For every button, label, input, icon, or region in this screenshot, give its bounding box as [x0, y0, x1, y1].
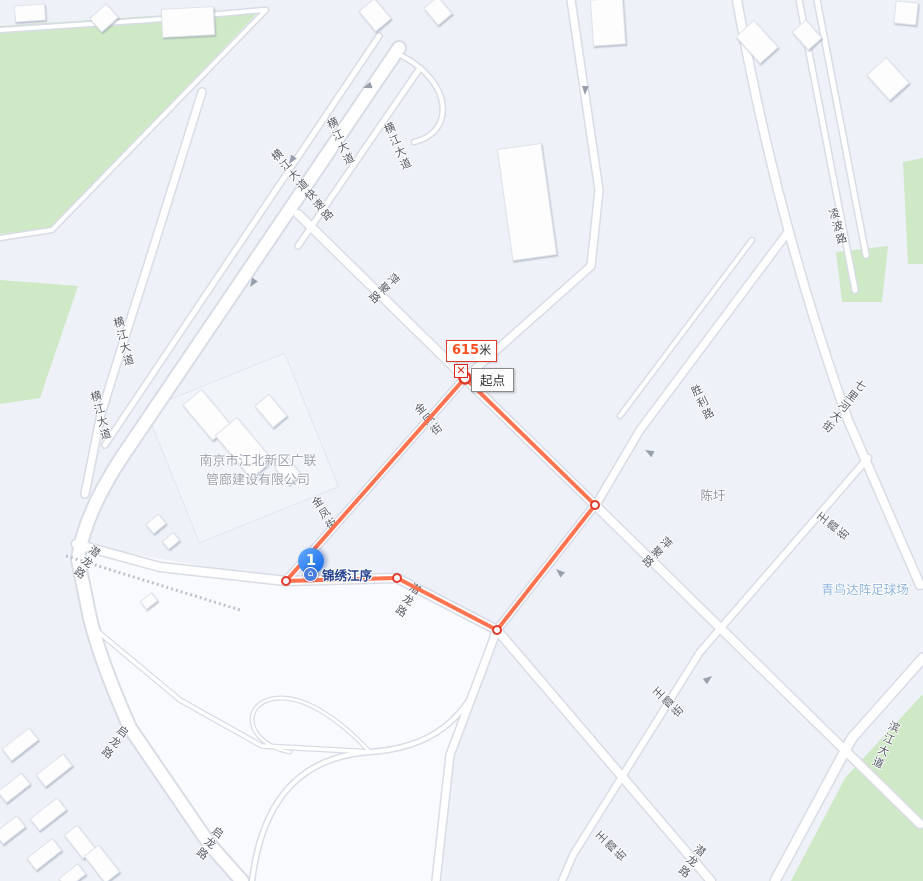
poi-name-label[interactable]: 锦绣江序	[322, 565, 372, 584]
route-vertex[interactable]	[493, 626, 501, 634]
start-point-tooltip: 起点	[471, 368, 514, 392]
distance-label-box: 615米	[446, 340, 497, 362]
distance-value: 615	[452, 343, 479, 358]
route-vertex[interactable]	[393, 574, 401, 582]
poi-building-icon[interactable]: ⌂	[303, 567, 318, 582]
route-vertex[interactable]	[591, 501, 599, 509]
map-canvas[interactable]: 南京市江北新区广联 管廊建设有限公司 陈圩 青鸟达阵足球场 横江大道快速路横江大…	[0, 0, 923, 881]
measure-route-layer[interactable]	[0, 0, 923, 881]
route-vertex[interactable]	[282, 577, 290, 585]
distance-unit: 米	[479, 343, 491, 357]
measure-route-line[interactable]	[286, 378, 595, 630]
delete-measure-icon[interactable]: ✕	[454, 364, 468, 378]
